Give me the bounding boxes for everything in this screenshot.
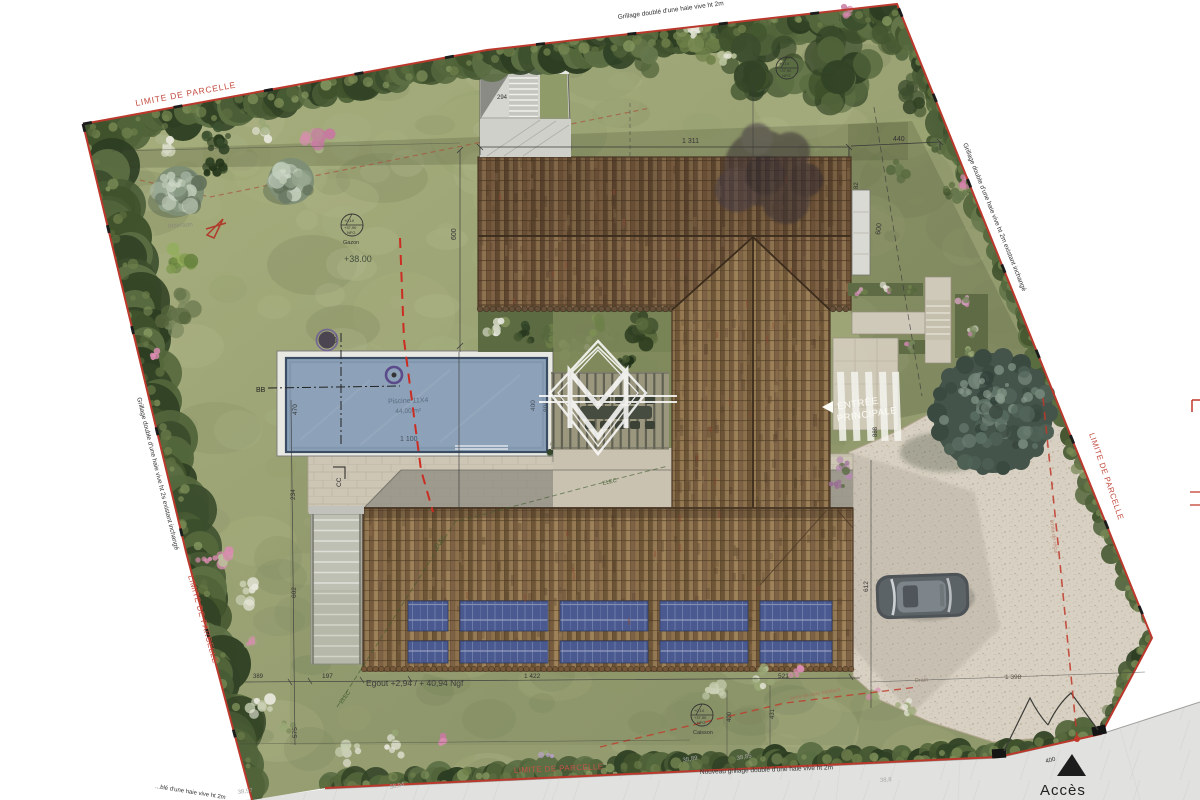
svg-text:NFG: NFG	[347, 230, 355, 235]
svg-text:602: 602	[291, 587, 298, 598]
svg-text:BB: BB	[256, 387, 266, 394]
svg-text:440: 440	[893, 136, 905, 143]
svg-text:Caisson: Caisson	[693, 730, 713, 736]
svg-text:+38.00: +38.00	[344, 254, 372, 264]
svg-text:600: 600	[451, 228, 458, 240]
svg-text:600: 600	[875, 223, 883, 236]
svg-text:NFG: NFG	[782, 73, 790, 78]
svg-text:400: 400	[727, 711, 733, 722]
svg-text:294: 294	[497, 95, 508, 101]
svg-text:Egout +2,94 / + 40,94 Ngf: Egout +2,94 / + 40,94 Ngf	[366, 678, 464, 688]
svg-text:1 100: 1 100	[400, 436, 418, 443]
svg-text:400: 400	[530, 400, 537, 411]
svg-text:CC: CC	[336, 477, 343, 487]
svg-text:38,8: 38,8	[880, 777, 893, 784]
svg-text:82: 82	[854, 182, 860, 189]
svg-text:389: 389	[253, 674, 264, 680]
svg-text:1 422: 1 422	[524, 673, 541, 680]
svg-text:Drain: Drain	[915, 677, 928, 684]
svg-text:Gazon: Gazon	[343, 240, 359, 246]
svg-text:575: 575	[292, 727, 299, 738]
svg-text:+0,10: +0,10	[344, 218, 355, 223]
svg-text:NFG: NFG	[697, 720, 705, 725]
svg-text:Piscine 11X4: Piscine 11X4	[388, 397, 429, 405]
svg-text:612: 612	[863, 581, 870, 592]
svg-text:470: 470	[292, 404, 299, 415]
svg-text:Accès: Accès	[1040, 782, 1086, 799]
svg-text:+0,10: +0,10	[779, 61, 790, 66]
svg-text:234: 234	[290, 489, 297, 500]
svg-text:1 398: 1 398	[1005, 674, 1022, 681]
svg-text:521: 521	[778, 673, 789, 680]
svg-text:1 311: 1 311	[682, 138, 699, 145]
svg-text:888: 888	[873, 426, 879, 437]
svg-text:431: 431	[770, 708, 776, 719]
svg-text:44,00 m²: 44,00 m²	[395, 407, 422, 415]
svg-text:+0,10: +0,10	[694, 708, 705, 713]
svg-text:197: 197	[322, 673, 333, 680]
